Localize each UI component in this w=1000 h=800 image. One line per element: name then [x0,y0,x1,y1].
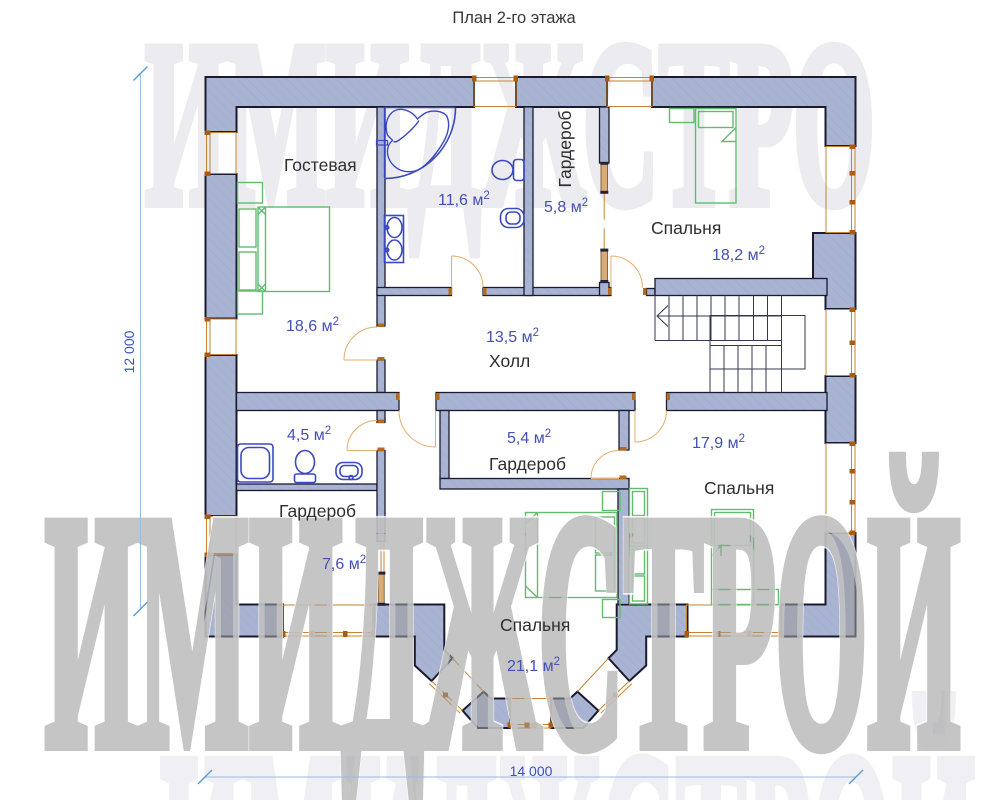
svg-text:5,4 м2: 5,4 м2 [507,428,551,447]
svg-text:12 000: 12 000 [121,330,137,373]
svg-text:5,8 м2: 5,8 м2 [544,197,588,216]
svg-text:Гардероб: Гардероб [555,111,575,188]
svg-text:11,6 м2: 11,6 м2 [438,190,490,209]
svg-text:Спальня: Спальня [500,615,570,635]
svg-text:Гостевая: Гостевая [284,155,357,175]
svg-text:18,2 м2: 18,2 м2 [712,245,765,264]
svg-text:7,6 м2: 7,6 м2 [322,554,366,573]
svg-text:Спальня: Спальня [651,218,721,238]
svg-text:Гардероб: Гардероб [489,454,566,474]
svg-text:План 2-го этажа: План 2-го этажа [452,9,576,27]
svg-text:14 000: 14 000 [510,763,553,779]
svg-text:4,5 м2: 4,5 м2 [287,425,331,444]
svg-text:Гардероб: Гардероб [279,501,356,521]
svg-text:21,1 м2: 21,1 м2 [507,656,560,675]
svg-text:ИМИДЖСТРО: ИМИДЖСТРО [145,0,875,255]
svg-text:18,6 м2: 18,6 м2 [286,316,339,335]
svg-text:17,9 м2: 17,9 м2 [692,433,745,452]
svg-text:Спальня: Спальня [704,478,774,498]
svg-text:13,5 м2: 13,5 м2 [486,327,539,346]
svg-text:Холл: Холл [489,351,530,371]
